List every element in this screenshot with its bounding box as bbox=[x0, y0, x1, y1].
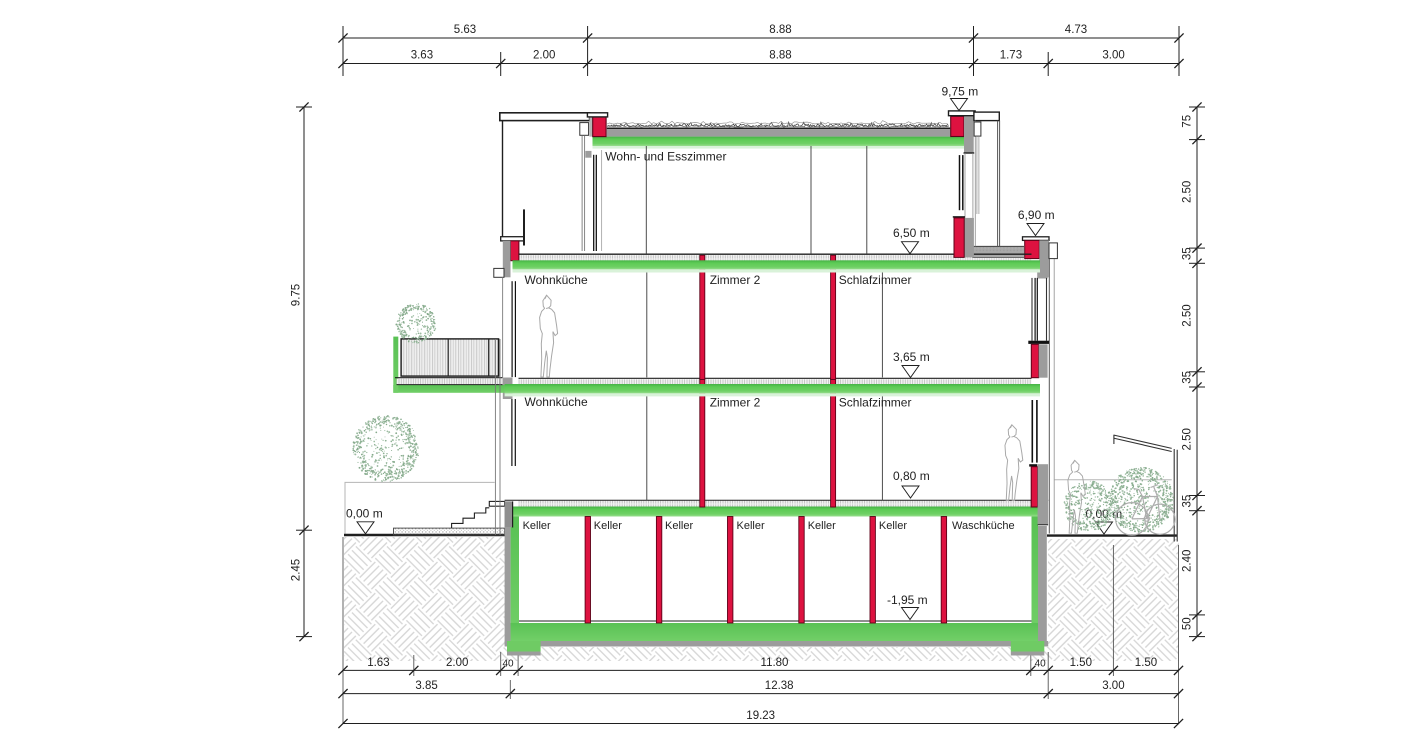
svg-text:3.00: 3.00 bbox=[1102, 50, 1124, 62]
svg-text:40: 40 bbox=[502, 659, 514, 670]
svg-text:Zimmer 2: Zimmer 2 bbox=[710, 273, 761, 287]
svg-text:Keller: Keller bbox=[808, 520, 836, 532]
svg-text:2.40: 2.40 bbox=[1182, 550, 1194, 572]
svg-text:Keller: Keller bbox=[737, 520, 765, 532]
svg-text:Wohnküche: Wohnküche bbox=[525, 395, 588, 409]
svg-text:2.50: 2.50 bbox=[1182, 181, 1194, 203]
svg-text:Keller: Keller bbox=[523, 520, 551, 532]
svg-text:1.63: 1.63 bbox=[367, 657, 389, 669]
svg-text:75: 75 bbox=[1182, 115, 1194, 128]
svg-text:11.80: 11.80 bbox=[761, 657, 789, 669]
svg-text:Keller: Keller bbox=[665, 520, 693, 532]
svg-text:35: 35 bbox=[1182, 495, 1194, 508]
svg-text:0,80 m: 0,80 m bbox=[893, 469, 930, 483]
svg-text:6,90 m: 6,90 m bbox=[1018, 208, 1055, 222]
svg-text:Wohnküche: Wohnküche bbox=[525, 273, 588, 287]
svg-text:Zimmer 2: Zimmer 2 bbox=[710, 396, 761, 410]
svg-text:4.73: 4.73 bbox=[1065, 24, 1087, 36]
svg-text:1.50: 1.50 bbox=[1070, 657, 1092, 669]
svg-text:1.73: 1.73 bbox=[1000, 50, 1022, 62]
svg-text:8.88: 8.88 bbox=[769, 24, 791, 36]
svg-text:Schlafzimmer: Schlafzimmer bbox=[839, 273, 912, 287]
svg-text:35: 35 bbox=[1182, 247, 1194, 260]
svg-text:5.63: 5.63 bbox=[454, 24, 476, 36]
svg-text:2.45: 2.45 bbox=[291, 559, 303, 581]
svg-text:-1,95 m: -1,95 m bbox=[887, 593, 928, 607]
svg-text:9.75: 9.75 bbox=[291, 284, 303, 306]
svg-text:2.50: 2.50 bbox=[1182, 304, 1194, 326]
svg-text:0,00 m: 0,00 m bbox=[346, 507, 383, 521]
svg-text:3.63: 3.63 bbox=[411, 50, 433, 62]
svg-text:3,65 m: 3,65 m bbox=[893, 350, 930, 364]
svg-text:Schlafzimmer: Schlafzimmer bbox=[839, 396, 912, 410]
svg-text:8.88: 8.88 bbox=[769, 50, 791, 62]
svg-text:3.00: 3.00 bbox=[1102, 680, 1124, 692]
svg-text:19.23: 19.23 bbox=[746, 710, 775, 722]
svg-text:3.85: 3.85 bbox=[415, 680, 437, 692]
svg-text:50: 50 bbox=[1182, 617, 1194, 630]
svg-text:2.00: 2.00 bbox=[446, 657, 468, 669]
svg-text:Keller: Keller bbox=[879, 520, 907, 532]
svg-text:2.50: 2.50 bbox=[1182, 428, 1194, 450]
svg-text:2.00: 2.00 bbox=[533, 50, 555, 62]
svg-text:35: 35 bbox=[1182, 371, 1194, 384]
svg-text:Wohn- und Esszimmer: Wohn- und Esszimmer bbox=[605, 150, 726, 164]
svg-text:12.38: 12.38 bbox=[765, 680, 794, 692]
svg-text:40: 40 bbox=[1035, 659, 1047, 670]
svg-text:Keller: Keller bbox=[594, 520, 622, 532]
svg-text:6,50 m: 6,50 m bbox=[893, 226, 930, 240]
svg-text:1.50: 1.50 bbox=[1135, 657, 1157, 669]
svg-text:Waschküche: Waschküche bbox=[952, 520, 1015, 532]
svg-text:9,75 m: 9,75 m bbox=[942, 85, 979, 99]
